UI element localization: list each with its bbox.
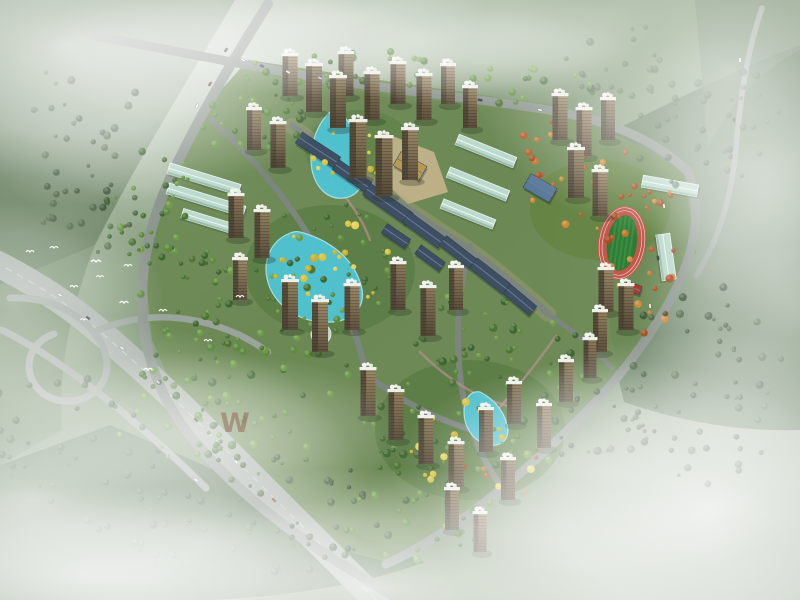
roof-structure: [390, 385, 395, 390]
tree-highlight: [439, 305, 442, 308]
tower-roof-cap: [592, 309, 608, 312]
roof-structure: [359, 116, 363, 120]
tree-highlight: [159, 254, 163, 258]
tower-roof-cap: [598, 267, 615, 270]
tower-roof-cap: [401, 127, 419, 130]
tree-highlight: [154, 243, 157, 246]
tree-highlight: [304, 284, 308, 288]
tree-highlight: [199, 260, 203, 264]
tree-highlight: [505, 301, 507, 303]
tower-roof-cap: [583, 337, 598, 340]
tree-highlight: [347, 273, 349, 275]
tree-highlight: [484, 312, 486, 314]
tree-highlight: [361, 240, 365, 244]
tower-roof-cap: [618, 283, 635, 286]
tree-highlight: [233, 343, 237, 347]
tree-highlight: [182, 275, 185, 278]
tree-highlight: [260, 346, 263, 349]
tree-highlight: [193, 321, 196, 324]
tree-highlight: [141, 213, 144, 216]
tree-highlight: [567, 350, 572, 355]
roof-structure: [346, 279, 351, 284]
roof-structure: [454, 260, 457, 263]
tree-highlight: [596, 227, 598, 229]
tree-highlight: [197, 330, 201, 334]
tree-highlight: [450, 356, 454, 360]
roof-structure: [422, 281, 427, 286]
tower-windows: [421, 288, 436, 336]
tree-highlight: [218, 297, 221, 300]
tree-highlight: [331, 171, 333, 173]
tree-highlight: [342, 250, 345, 253]
tower-windows: [619, 286, 634, 330]
tree-highlight: [334, 328, 337, 331]
tree-highlight: [222, 341, 224, 343]
tree-highlight: [513, 346, 516, 349]
tower-windows: [391, 264, 406, 310]
tree-highlight: [605, 236, 610, 241]
tree-highlight: [333, 250, 336, 253]
tree-highlight: [267, 297, 269, 299]
roof-structure: [404, 123, 409, 128]
tower-roof-cap: [360, 367, 377, 370]
tree-highlight: [365, 215, 368, 218]
tower-roof-cap: [344, 283, 361, 286]
tree-highlight: [160, 211, 163, 214]
roof-structure: [385, 132, 389, 136]
tree-highlight: [358, 213, 360, 215]
tree-highlight: [330, 224, 332, 226]
roof-structure: [604, 262, 607, 265]
tree-highlight: [368, 134, 370, 136]
tree-highlight: [276, 309, 278, 311]
tree-highlight: [319, 253, 323, 257]
tree-highlight: [627, 257, 630, 260]
tree-highlight: [182, 213, 186, 217]
tower-roof-cap: [349, 119, 368, 122]
tree-highlight: [334, 316, 338, 320]
tree-highlight: [485, 356, 488, 359]
rendering-canvas: [0, 0, 800, 600]
tree-highlight: [202, 253, 206, 257]
tree-highlight: [292, 274, 294, 276]
roof-structure: [238, 252, 241, 255]
roof-structure: [588, 332, 591, 335]
roof-structure: [426, 280, 429, 283]
aerial-rendering: W: [0, 0, 800, 600]
tree-highlight: [292, 235, 294, 237]
tree-highlight: [180, 218, 182, 220]
tree-highlight: [414, 342, 417, 345]
tree-highlight: [303, 316, 305, 318]
tower-windows: [312, 302, 328, 352]
tree-highlight: [173, 234, 177, 238]
tree-highlight: [228, 267, 233, 272]
tree-highlight: [573, 332, 576, 335]
tree-highlight: [352, 222, 356, 226]
tower-roof-cap: [388, 389, 405, 392]
tree-highlight: [282, 213, 285, 216]
roof-structure: [594, 305, 599, 310]
tower-roof-cap: [375, 135, 394, 138]
tree-highlight: [518, 329, 521, 332]
tree-highlight: [562, 221, 566, 225]
tree-highlight: [202, 313, 206, 317]
roof-structure: [314, 295, 319, 300]
roof-structure: [256, 205, 261, 210]
tree-highlight: [410, 409, 413, 412]
tower-windows: [402, 130, 418, 180]
tower-windows: [282, 282, 298, 330]
tree-highlight: [321, 276, 325, 280]
tree-highlight: [150, 231, 152, 233]
tree-highlight: [462, 352, 465, 355]
tree-highlight: [345, 221, 349, 225]
tree-highlight: [179, 262, 181, 264]
tree-highlight: [439, 358, 444, 363]
tree-highlight: [226, 300, 230, 304]
tree-highlight: [377, 301, 379, 303]
tree-highlight: [165, 244, 170, 249]
tower-windows: [376, 138, 393, 196]
tree-highlight: [345, 203, 347, 205]
roof-structure: [392, 257, 397, 262]
tree-highlight: [255, 269, 257, 271]
tree-highlight: [322, 159, 325, 162]
tree-highlight: [213, 319, 217, 323]
tree-highlight: [133, 211, 136, 214]
roof-structure: [377, 131, 382, 136]
tree-highlight: [225, 340, 229, 344]
tree-highlight: [306, 292, 308, 294]
tree-highlight: [338, 235, 342, 239]
tower-windows: [229, 196, 244, 238]
tower-windows: [345, 286, 360, 330]
tree-highlight: [206, 310, 208, 312]
tree-highlight: [236, 338, 239, 341]
roof-structure: [411, 124, 415, 128]
tree-highlight: [510, 358, 512, 360]
roof-structure: [600, 263, 605, 268]
tree-highlight: [311, 156, 314, 159]
roof-structure: [408, 122, 411, 125]
roof-structure: [362, 363, 367, 368]
tree-highlight: [226, 334, 229, 337]
tower-roof-cap: [232, 257, 248, 260]
tree-highlight: [274, 274, 277, 277]
tree-highlight: [164, 209, 168, 213]
tree-highlight: [382, 249, 385, 252]
roof-structure: [598, 304, 601, 307]
tree-highlight: [325, 215, 328, 218]
tree-highlight: [311, 254, 316, 259]
fog-patch: [320, 10, 640, 110]
tree-highlight: [166, 201, 170, 205]
tree-highlight: [372, 291, 374, 293]
tree-highlight: [374, 287, 376, 289]
roof-structure: [366, 362, 369, 365]
roof-structure: [260, 204, 263, 207]
tree-highlight: [333, 267, 335, 269]
roof-structure: [321, 296, 325, 300]
tower-windows: [350, 122, 367, 178]
roof-structure: [396, 256, 399, 259]
tree-highlight: [530, 198, 533, 201]
roof-structure: [350, 278, 353, 281]
tree-highlight: [287, 260, 291, 264]
roof-structure: [394, 384, 397, 387]
tree-highlight: [301, 275, 305, 279]
tree-highlight: [362, 277, 365, 280]
tower-windows: [233, 260, 247, 300]
tree-highlight: [510, 327, 514, 331]
tree-highlight: [340, 308, 343, 311]
tree-highlight: [368, 166, 372, 170]
tree-highlight: [367, 151, 369, 153]
tree-highlight: [186, 277, 188, 279]
tree-highlight: [506, 347, 510, 351]
tower-roof-cap: [390, 261, 407, 264]
tree-highlight: [436, 358, 438, 360]
tree-highlight: [331, 292, 334, 295]
tree-highlight: [258, 330, 262, 334]
tree-highlight: [407, 382, 409, 384]
roof-structure: [450, 261, 455, 266]
tree-highlight: [490, 324, 495, 329]
tree-highlight: [345, 364, 347, 366]
tree-highlight: [501, 297, 506, 302]
tree-highlight: [295, 257, 298, 260]
tree-highlight: [297, 235, 301, 239]
tower-roof-cap: [254, 209, 271, 212]
tree-highlight: [216, 269, 219, 272]
tree-highlight: [477, 353, 480, 356]
tree-highlight: [454, 370, 457, 373]
tree-highlight: [362, 281, 365, 284]
tree-highlight: [462, 328, 464, 330]
tree-highlight: [351, 264, 354, 267]
roof-structure: [288, 274, 291, 277]
tree-highlight: [305, 265, 308, 268]
tree-highlight: [385, 249, 388, 252]
tree-highlight: [350, 263, 352, 265]
roof-structure: [230, 189, 235, 194]
tower-roof-cap: [448, 265, 464, 268]
roof-structure: [234, 253, 239, 258]
tree-highlight: [216, 303, 219, 306]
tree-highlight: [316, 166, 318, 168]
tree-highlight: [210, 258, 213, 261]
tower-roof-cap: [281, 279, 299, 282]
tree-highlight: [417, 405, 420, 408]
tower-windows: [255, 212, 270, 258]
roof-structure: [382, 130, 385, 133]
tree-highlight: [550, 320, 554, 324]
tree-highlight: [270, 274, 273, 277]
tree-highlight: [610, 235, 612, 237]
tree-highlight: [555, 336, 558, 339]
tree-highlight: [388, 276, 391, 279]
roof-structure: [318, 294, 321, 297]
tower-roof-cap: [420, 285, 437, 288]
roof-structure: [234, 188, 237, 191]
tree-highlight: [272, 298, 274, 300]
tree-highlight: [385, 267, 389, 271]
tree-highlight: [337, 255, 340, 258]
tree-highlight: [468, 371, 471, 374]
tree-highlight: [309, 322, 311, 324]
tree-highlight: [468, 345, 472, 349]
tree-highlight: [224, 267, 227, 270]
roof-structure: [356, 114, 359, 117]
tree-highlight: [214, 279, 217, 282]
tower-roof-cap: [311, 299, 329, 302]
roof-structure: [351, 115, 356, 120]
tree-highlight: [206, 249, 208, 251]
roof-structure: [284, 275, 289, 280]
tree-highlight: [445, 294, 449, 298]
roof-structure: [584, 333, 589, 338]
tree-highlight: [449, 380, 453, 384]
tower-windows: [449, 268, 463, 310]
roof-structure: [624, 278, 627, 281]
tree-highlight: [291, 347, 295, 351]
tree-highlight: [366, 295, 368, 297]
tree-highlight: [189, 256, 193, 260]
tower-roof-cap: [228, 193, 245, 196]
tree-highlight: [305, 350, 309, 354]
tree-highlight: [462, 348, 464, 350]
roof-structure: [291, 276, 295, 280]
tree-highlight: [495, 336, 497, 338]
tree-highlight: [280, 257, 283, 260]
tree-highlight: [176, 310, 178, 312]
tree-highlight: [313, 227, 315, 229]
roof-structure: [620, 279, 625, 284]
